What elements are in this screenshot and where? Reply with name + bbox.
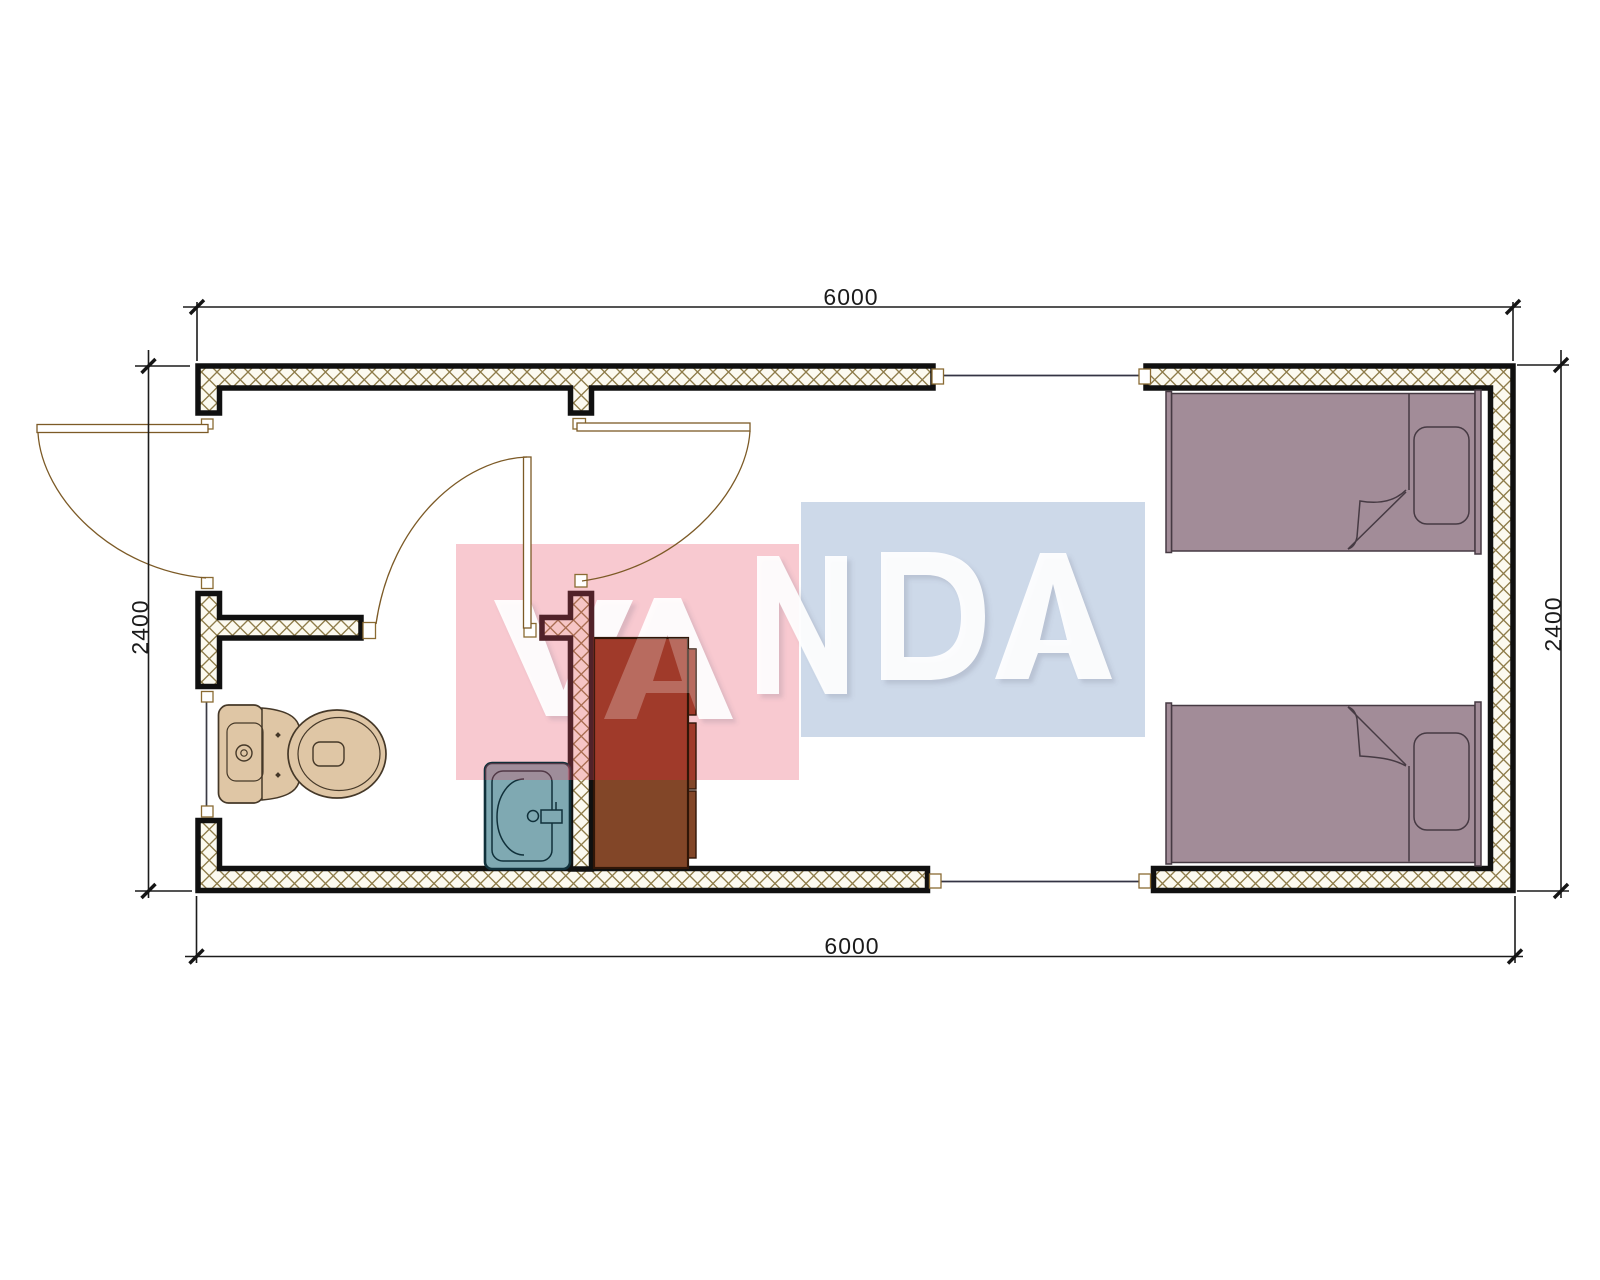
svg-text:2400: 2400 <box>127 599 153 654</box>
svg-text:6000: 6000 <box>823 284 878 310</box>
svg-text:6000: 6000 <box>824 933 879 959</box>
svg-text:2400: 2400 <box>1540 596 1566 651</box>
